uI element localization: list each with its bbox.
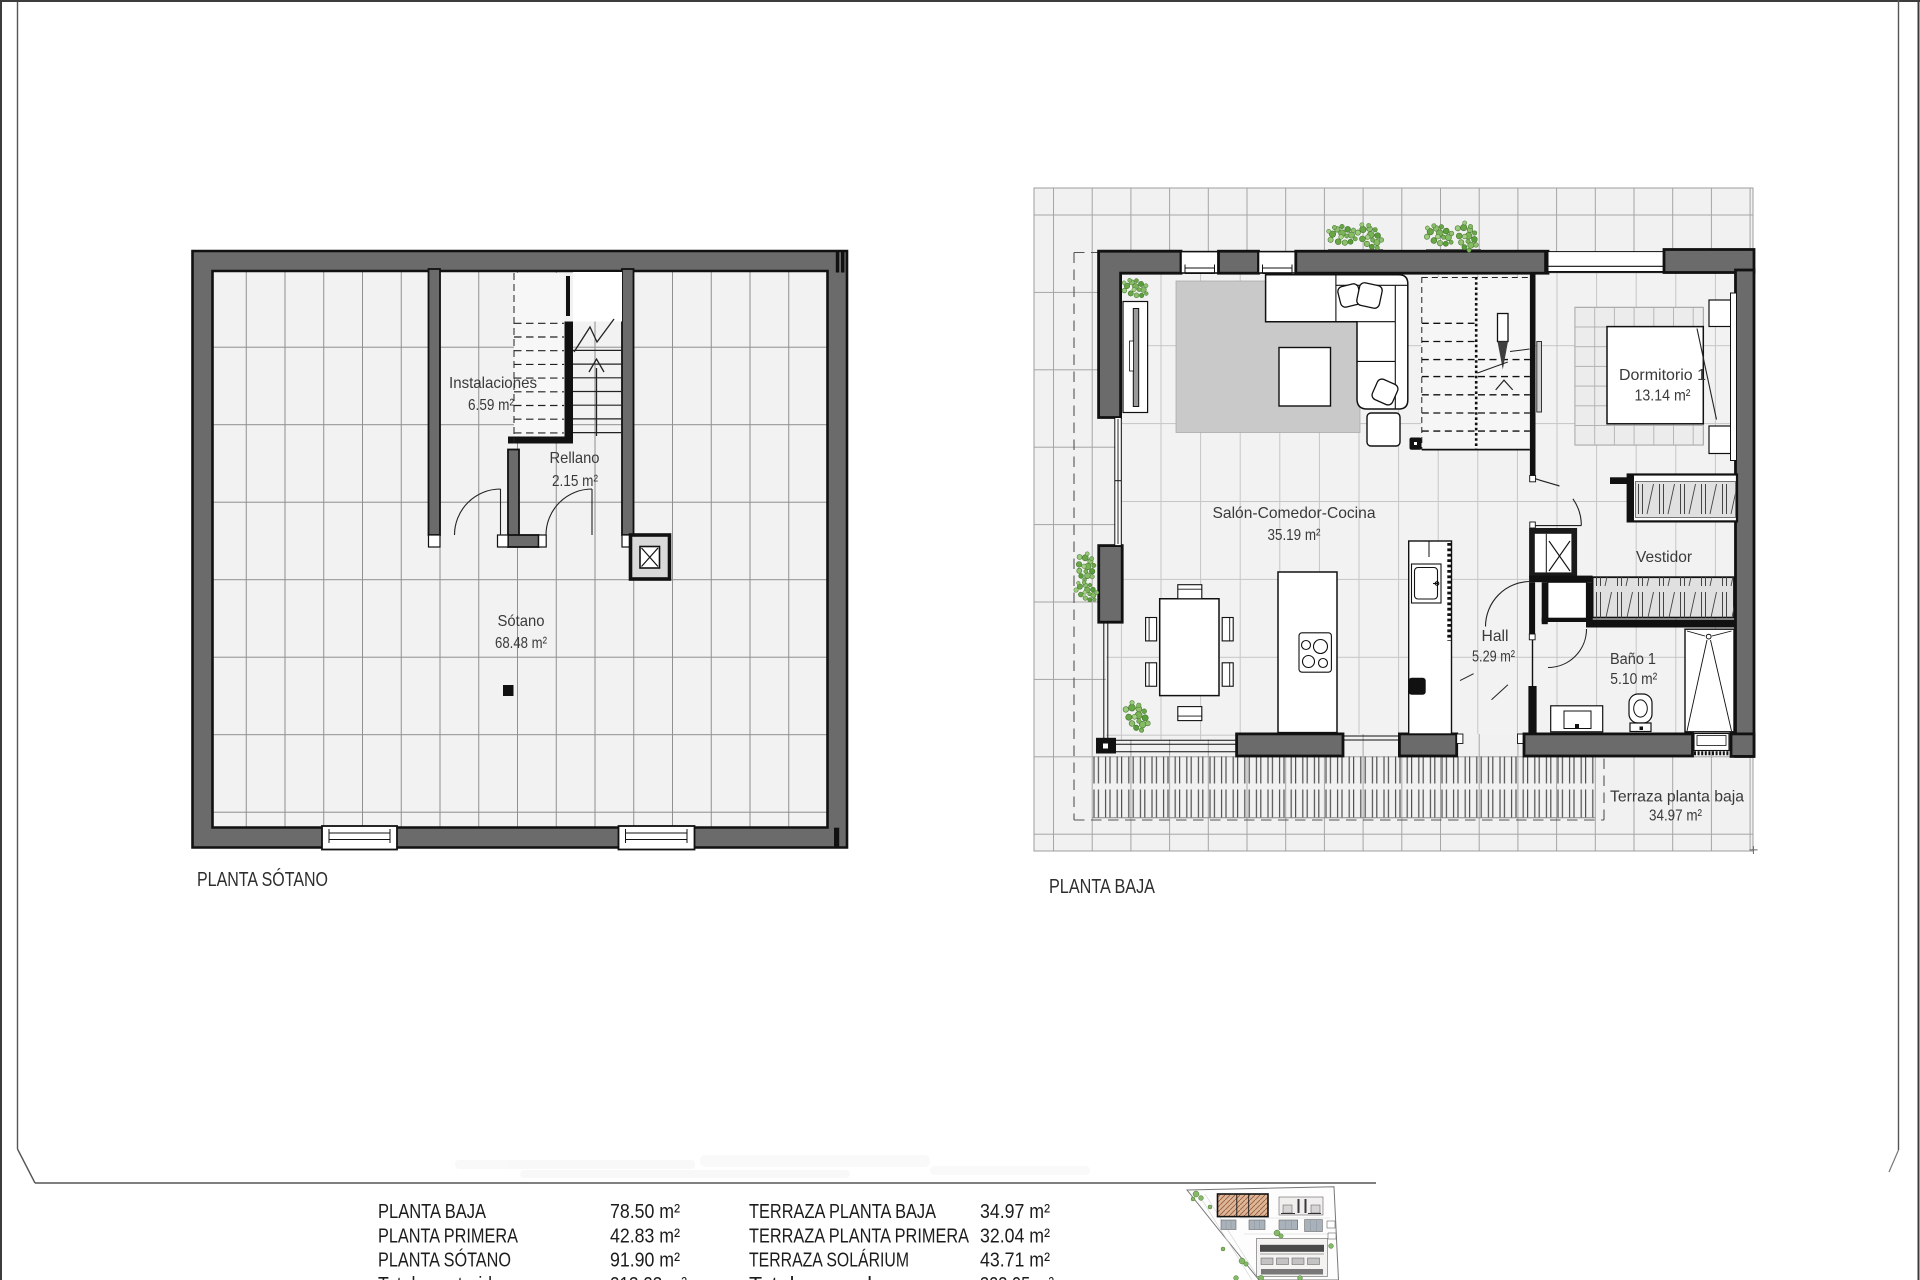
svg-text:Dormitorio 1: Dormitorio 1 <box>1619 367 1706 384</box>
svg-text:5.29 m²: 5.29 m² <box>1472 649 1516 666</box>
svg-text:78.50 m²: 78.50 m² <box>610 1201 680 1223</box>
svg-text:213.23 m²: 213.23 m² <box>610 1274 687 1280</box>
svg-text:13.14 m²: 13.14 m² <box>1635 388 1692 405</box>
svg-text:91.90 m²: 91.90 m² <box>610 1250 680 1272</box>
svg-text:Vestidor: Vestidor <box>1636 549 1693 566</box>
svg-text:34.97 m²: 34.97 m² <box>1649 808 1703 825</box>
svg-text:32.04 m²: 32.04 m² <box>980 1226 1050 1248</box>
svg-text:323.95 m²: 323.95 m² <box>980 1274 1054 1280</box>
svg-text:Sótano: Sótano <box>498 613 545 630</box>
svg-text:2.15 m²: 2.15 m² <box>552 473 599 490</box>
svg-text:35.19 m²: 35.19 m² <box>1268 527 1322 544</box>
svg-text:PLANTA PRIMERA: PLANTA PRIMERA <box>378 1226 519 1248</box>
svg-text:Instalaciones: Instalaciones <box>449 375 537 392</box>
svg-text:68.48 m²: 68.48 m² <box>495 635 548 652</box>
svg-text:TERRAZA PLANTA PRIMERA: TERRAZA PLANTA PRIMERA <box>749 1226 970 1248</box>
svg-text:5.10 m²: 5.10 m² <box>1610 671 1658 688</box>
svg-text:Total general: Total general <box>749 1274 872 1280</box>
svg-text:TERRAZA PLANTA BAJA: TERRAZA PLANTA BAJA <box>749 1201 937 1223</box>
svg-text:PLANTA BAJA: PLANTA BAJA <box>378 1201 487 1223</box>
svg-text:Rellano: Rellano <box>550 450 600 467</box>
svg-text:42.83 m²: 42.83 m² <box>610 1226 680 1248</box>
svg-text:6.59 m²: 6.59 m² <box>468 397 515 414</box>
svg-text:43.71 m²: 43.71 m² <box>980 1250 1050 1272</box>
svg-text:PLANTA SÓTANO: PLANTA SÓTANO <box>378 1249 511 1272</box>
svg-text:TERRAZA SOLÁRIUM: TERRAZA SOLÁRIUM <box>749 1249 909 1272</box>
svg-text:Baño 1: Baño 1 <box>1610 651 1656 668</box>
svg-text:Terraza planta baja: Terraza planta baja <box>1610 789 1744 806</box>
svg-text:Hall: Hall <box>1482 628 1509 645</box>
svg-text:PLANTA BAJA: PLANTA BAJA <box>1049 876 1156 898</box>
svg-text:PLANTA SÓTANO: PLANTA SÓTANO <box>197 868 328 891</box>
svg-text:Salón-Comedor-Cocina: Salón-Comedor-Cocina <box>1213 505 1376 522</box>
svg-text:Total construida: Total construida <box>378 1274 503 1280</box>
svg-text:34.97 m²: 34.97 m² <box>980 1201 1050 1223</box>
